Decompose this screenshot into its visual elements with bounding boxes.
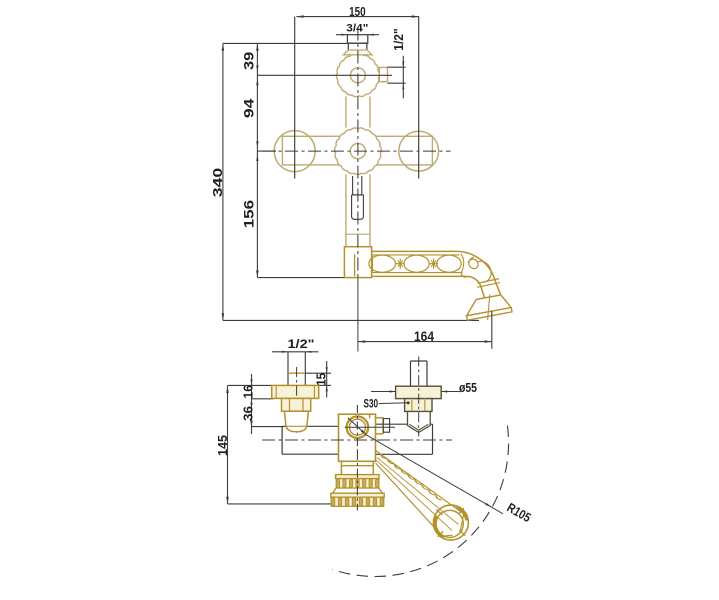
svg-text:164: 164 xyxy=(414,329,434,344)
svg-text:36: 36 xyxy=(241,406,256,421)
svg-text:1/2": 1/2" xyxy=(391,28,406,51)
svg-text:94: 94 xyxy=(241,98,256,118)
svg-text:3/4": 3/4" xyxy=(346,22,368,34)
svg-text:16: 16 xyxy=(241,385,256,399)
svg-text:15: 15 xyxy=(314,373,329,386)
svg-text:R105: R105 xyxy=(504,500,533,525)
svg-text:1/2": 1/2" xyxy=(288,339,315,351)
svg-text:S30: S30 xyxy=(364,397,379,411)
svg-text:156: 156 xyxy=(241,199,256,228)
svg-text:145: 145 xyxy=(215,435,230,456)
svg-text:150: 150 xyxy=(349,4,366,19)
svg-text:39: 39 xyxy=(241,52,256,70)
svg-text:ø55: ø55 xyxy=(459,380,477,395)
svg-text:340: 340 xyxy=(210,168,225,198)
